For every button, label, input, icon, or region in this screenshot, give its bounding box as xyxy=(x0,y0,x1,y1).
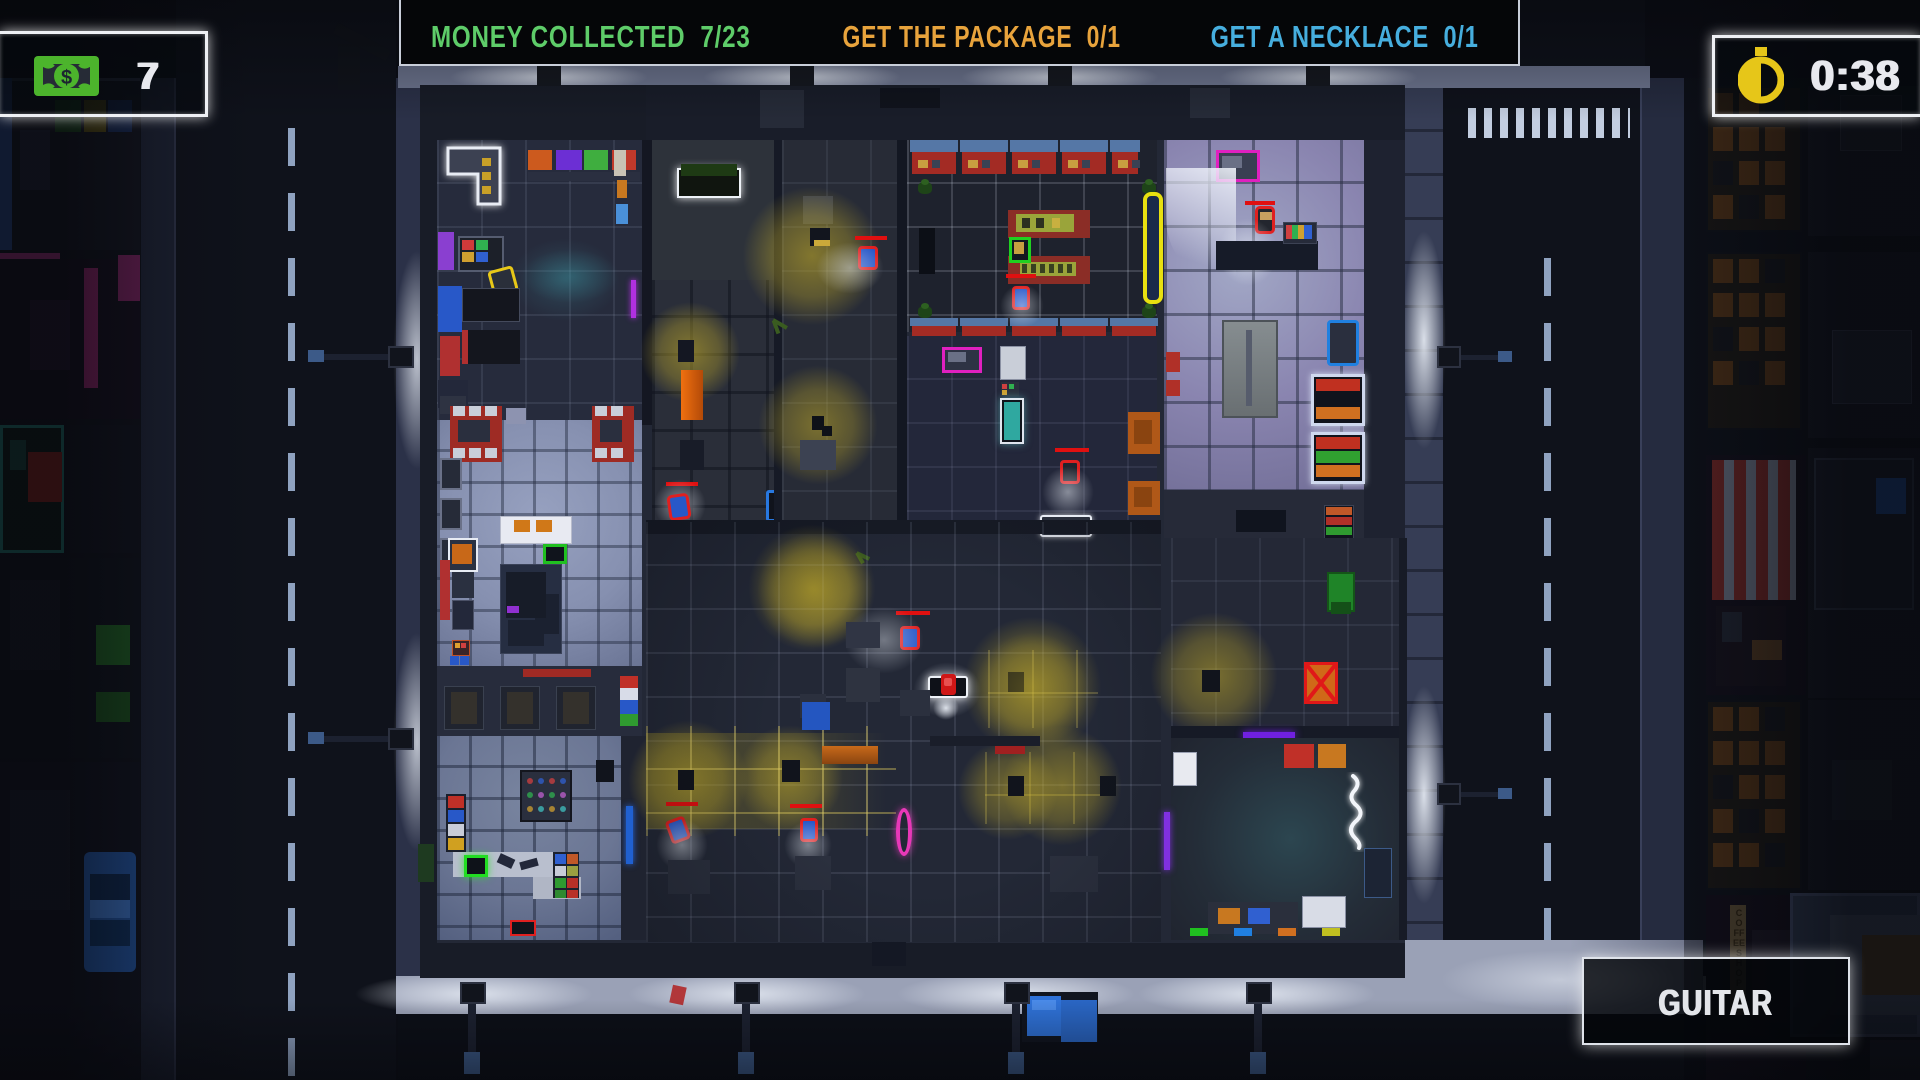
svg-text:$: $ xyxy=(61,67,72,89)
